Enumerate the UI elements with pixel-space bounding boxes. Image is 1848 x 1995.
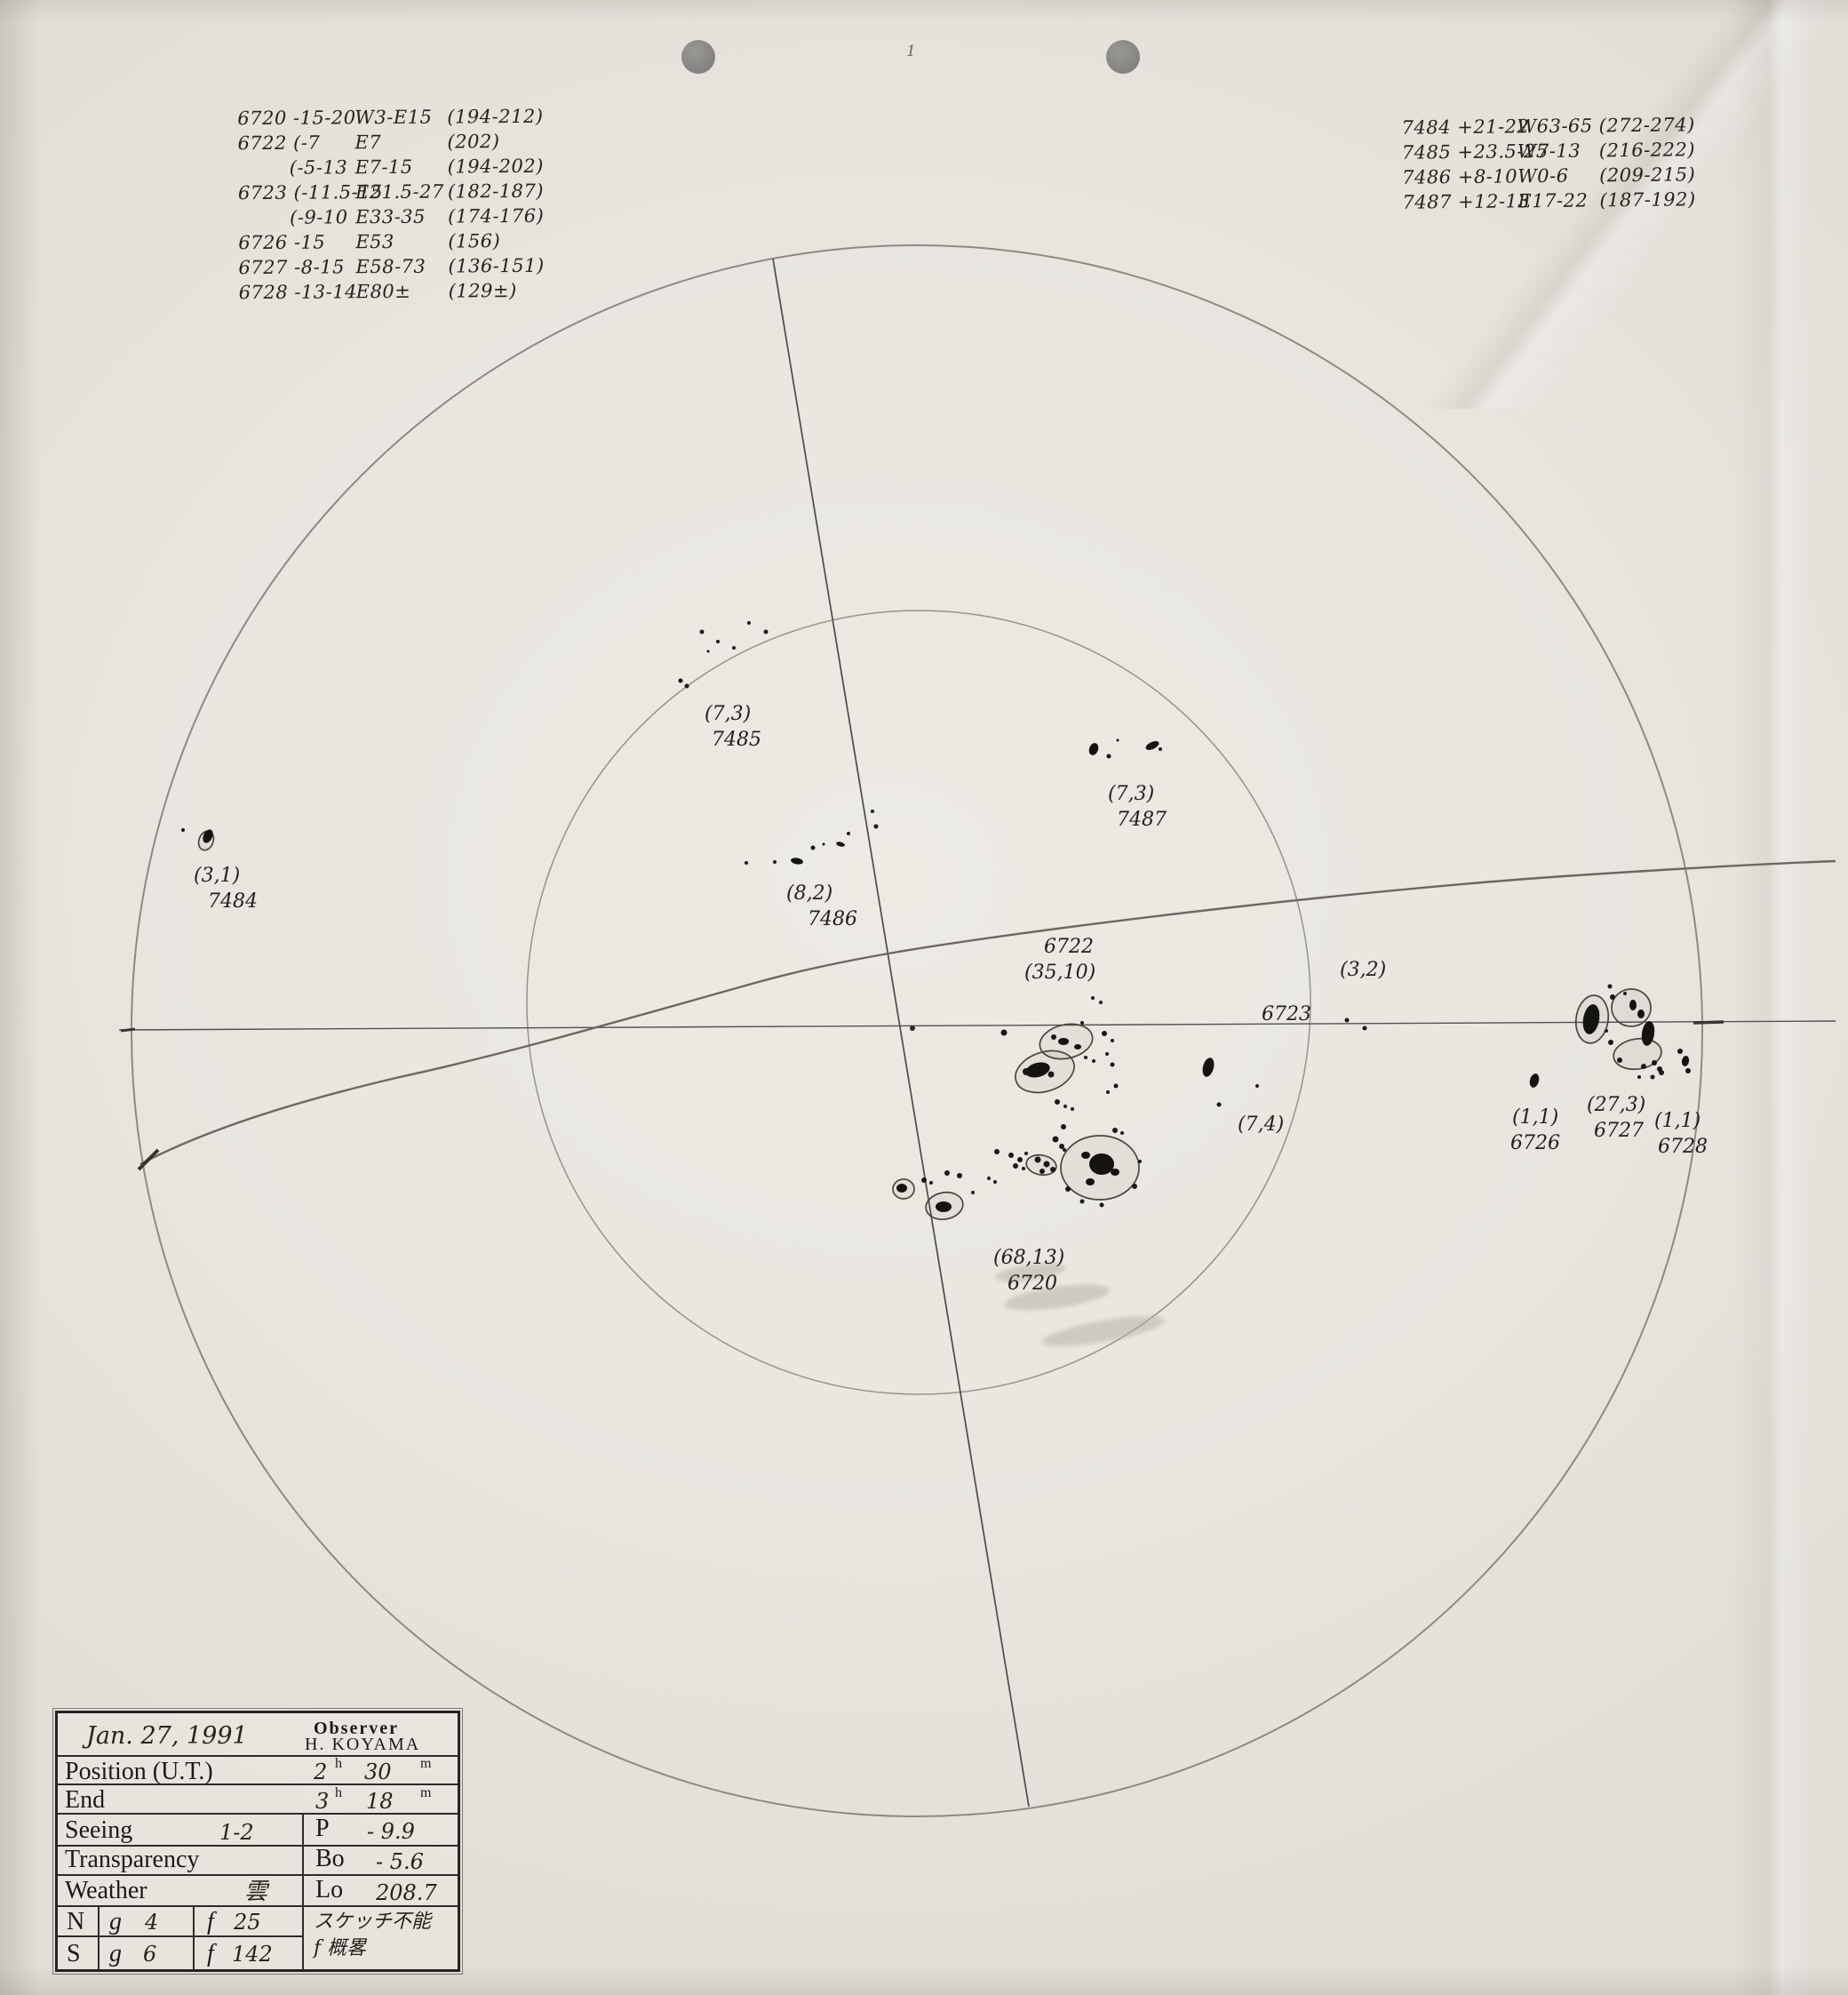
- umbra-spot: [1200, 1057, 1215, 1078]
- sunspot-dot: [1080, 1021, 1084, 1025]
- end-minute: 18: [366, 1789, 394, 1814]
- n-label: N: [67, 1908, 84, 1936]
- umbra-spot: [1637, 1009, 1645, 1018]
- disk-center-mark: [910, 1025, 915, 1031]
- disk-group-number: 6727: [1594, 1120, 1644, 1142]
- s-f-value: 142: [232, 1942, 273, 1967]
- sunspot-dot: [1107, 754, 1111, 759]
- sunspot-dot: [1159, 747, 1162, 751]
- umbra-spot: [1681, 1055, 1690, 1066]
- sketch-note: スケッチ不能 f 概畧: [314, 1909, 456, 1962]
- sunspot-dot: [1099, 1001, 1103, 1004]
- seeing-value: 1-2: [219, 1820, 254, 1845]
- table-row-end: [58, 1784, 458, 1815]
- sunspot-group-7485: [679, 621, 769, 689]
- sunspot-dot: [1217, 1103, 1222, 1107]
- umbra-spot: [1074, 1044, 1081, 1049]
- sunspot-group-6722: [1001, 996, 1119, 1111]
- sunspot-dot: [994, 1149, 1000, 1154]
- disk-group-number: 6726: [1510, 1132, 1560, 1154]
- sunspot-dot: [716, 640, 720, 643]
- sunspot-dot: [921, 1177, 927, 1183]
- position-label: Position (U.T.): [65, 1758, 213, 1786]
- sunspot-dot: [1255, 1084, 1259, 1088]
- sunspot-dot: [1084, 1056, 1087, 1059]
- umbra-spot: [1528, 1073, 1541, 1089]
- table-row-north: [58, 1905, 302, 1937]
- disk-group-label: (8,2): [786, 882, 832, 905]
- sunspot-group-7487: [1087, 739, 1162, 759]
- sunspot-group-6727: [1573, 985, 1664, 1080]
- sunspot-dot: [1111, 1039, 1114, 1042]
- minute-unit: m: [420, 1756, 431, 1772]
- meridian-line: [773, 259, 1029, 1807]
- umbra-spot: [1086, 1178, 1095, 1185]
- disk-group-label: (7,3): [1108, 783, 1154, 805]
- disk-group-number: 7486: [808, 908, 857, 930]
- sunspot-dot: [1105, 1052, 1109, 1056]
- umbra-spot: [1629, 1000, 1637, 1010]
- s-g-label: g: [109, 1940, 122, 1968]
- s-label: S: [67, 1940, 81, 1968]
- sunspot-dot: [1623, 992, 1627, 995]
- sunspot-group-6720: [893, 1124, 1142, 1222]
- left-limb-tick: [121, 1029, 135, 1031]
- disk-group-label: (3,2): [1340, 959, 1386, 981]
- disk-group-number: 7487: [1117, 809, 1167, 831]
- n-f-value: 25: [234, 1910, 261, 1935]
- sunspot-dot: [1059, 1144, 1064, 1149]
- sunspot-dot: [1641, 1064, 1646, 1069]
- lo-label: Lo: [315, 1876, 343, 1904]
- sunspot-dot: [1023, 1068, 1030, 1075]
- sunspot-dot: [1050, 1167, 1055, 1172]
- sunspot-dot: [1117, 739, 1119, 742]
- disk-group-label: 6723: [1262, 1003, 1311, 1025]
- sunspot-dot: [1114, 1084, 1119, 1089]
- p-value: - 9.9: [367, 1819, 415, 1844]
- umbra-spot: [1087, 742, 1100, 757]
- inner-reference-circle: [527, 610, 1310, 1394]
- end-minute-unit: m: [420, 1785, 431, 1801]
- s-g-value: 6: [143, 1942, 156, 1967]
- sunspot-dot: [1610, 994, 1615, 1000]
- sunspot-dot: [1063, 1148, 1066, 1152]
- sunspot-dot: [1132, 1184, 1137, 1189]
- sunspot-dot: [847, 832, 850, 835]
- umbra-spot: [836, 841, 846, 847]
- umbra-spot: [896, 1184, 907, 1193]
- transparency-label: Transparency: [65, 1846, 199, 1874]
- umbra-spot: [1058, 1038, 1069, 1045]
- disk-group-number: 6728: [1658, 1136, 1708, 1158]
- sunspot-dot: [1008, 1153, 1014, 1158]
- observation-table: Jan. 27, 1991 Observer H. KOYAMA Positio…: [55, 1711, 460, 1972]
- sunspot-group-6728: [1677, 1049, 1691, 1073]
- sunspot-dot: [1677, 1049, 1683, 1054]
- sunspot-dot: [1651, 1075, 1655, 1080]
- sunspot-dot: [1051, 1034, 1056, 1040]
- sunspot-dot: [732, 646, 736, 650]
- sunspot-dot: [1024, 1152, 1028, 1155]
- penumbra-outline: [1612, 1035, 1663, 1072]
- sunspot-dot: [1092, 1059, 1095, 1063]
- disk-group-label: (7,4): [1238, 1113, 1284, 1136]
- disk-group-number: 7485: [712, 729, 761, 751]
- disk-group-label: (1,1): [1512, 1106, 1558, 1129]
- sunspot-dot: [1112, 1128, 1118, 1133]
- sunspot-dot: [1013, 1163, 1018, 1169]
- sunspot-dot: [1106, 1090, 1110, 1094]
- bo-label: Bo: [315, 1845, 345, 1873]
- sunspot-dot: [1080, 1200, 1085, 1204]
- umbra-spot: [1111, 1169, 1119, 1176]
- sunspot-group-7486: [745, 810, 879, 866]
- sunspot-dot: [1044, 1161, 1050, 1168]
- disk-group-number: (35,10): [1024, 962, 1095, 984]
- right-limb-tick: [1693, 1022, 1724, 1023]
- end-hour-unit: h: [335, 1785, 342, 1801]
- disk-group-label: (27,3): [1587, 1094, 1645, 1116]
- sunspot-dot: [1071, 1107, 1074, 1111]
- sunspot-dot: [1055, 1099, 1060, 1105]
- sunspot-dot: [1039, 1169, 1045, 1174]
- lo-value: 208.7: [376, 1880, 437, 1905]
- sunspot-dot: [1017, 1157, 1023, 1162]
- sunspot-dot: [944, 1170, 950, 1176]
- sunspot-dot: [1100, 1203, 1104, 1208]
- weather-label: Weather: [65, 1877, 147, 1905]
- sketch-note-line1: スケッチ不能: [314, 1909, 456, 1935]
- position-minute: 30: [364, 1760, 392, 1784]
- date-value: Jan. 27, 1991: [86, 1722, 248, 1750]
- observer-name: H. KOYAMA: [305, 1735, 420, 1755]
- sunspot-dot: [1048, 1072, 1055, 1078]
- sunspot-dot: [181, 828, 185, 832]
- sunspot-dot: [823, 843, 825, 846]
- sunspot-observation-sheet: { "page_marks": { "top_center_mark": "1"…: [0, 0, 1848, 1995]
- sunspot-dot: [1061, 1124, 1066, 1129]
- sunspot-dot: [1053, 1137, 1059, 1143]
- disk-group-label: 6722: [1044, 936, 1094, 958]
- outer-limb-circle: [131, 245, 1702, 1816]
- sunspot-dot: [929, 1181, 933, 1185]
- end-hour: 3: [315, 1789, 329, 1814]
- sunspot-dot: [1111, 1063, 1115, 1067]
- umbra-spot: [1144, 739, 1160, 752]
- sunspot-dot: [745, 861, 748, 865]
- table-divider-gf: [193, 1905, 195, 1969]
- sunspot-dot: [871, 810, 874, 813]
- end-label: End: [65, 1786, 105, 1815]
- sunspot-dot: [1035, 1157, 1041, 1163]
- sunspot-group-6726: [1528, 1073, 1541, 1089]
- n-g-value: 4: [145, 1910, 158, 1935]
- sunspot-dot: [773, 860, 777, 864]
- sunspot-dot: [1138, 1160, 1142, 1163]
- sunspot-dot: [1345, 1018, 1350, 1023]
- table-divider-main: [302, 1813, 304, 1969]
- hour-unit: h: [335, 1756, 342, 1772]
- seeing-label: Seeing: [65, 1816, 132, 1845]
- disk-group-label: (3,1): [194, 865, 240, 887]
- disk-group-label: (1,1): [1654, 1110, 1701, 1132]
- sunspot-dot: [1022, 1167, 1025, 1170]
- sunspot-dot: [993, 1180, 997, 1184]
- sunspot-dot: [874, 825, 879, 829]
- weather-value: 雲: [244, 1879, 267, 1905]
- sunspot-group-6723: [1200, 1018, 1366, 1107]
- sunspot-dot: [1001, 1030, 1008, 1036]
- sunspot-dot: [679, 679, 683, 683]
- sunspot-dot: [1363, 1026, 1367, 1031]
- sunspot-dot: [685, 684, 689, 689]
- disk-group-label: (7,3): [705, 703, 751, 725]
- sunspot-dot: [971, 1191, 975, 1194]
- sunspot-dot: [1608, 1040, 1613, 1045]
- bo-value: - 5.6: [376, 1849, 424, 1874]
- n-f-label: f: [207, 1908, 214, 1936]
- sunspot-dot: [811, 846, 816, 850]
- sunspot-dot: [1685, 1068, 1691, 1073]
- sunspot-dot: [1608, 985, 1613, 989]
- solar-disk-drawing: (7,3)7485(7,3)7487(3,1)7484(8,2)74866722…: [0, 0, 1848, 1995]
- disk-group-number: 6720: [1008, 1273, 1057, 1295]
- pencil-smudge: [1040, 1310, 1167, 1353]
- sunspot-group-7484: [181, 828, 216, 852]
- sunspot-dot: [1120, 1131, 1124, 1135]
- s-f-label: f: [207, 1940, 214, 1968]
- sunspot-dot: [1652, 1060, 1657, 1065]
- sketch-note-line2: f 概畧: [314, 1935, 456, 1962]
- sunspot-dot: [764, 630, 769, 634]
- disk-group-number: 7484: [208, 890, 258, 913]
- sunspot-dot: [1065, 1186, 1071, 1192]
- sunspot-dot: [747, 621, 751, 625]
- umbra-spot: [1089, 1153, 1114, 1175]
- sunspot-dot: [1091, 996, 1095, 1000]
- n-g-label: g: [109, 1908, 122, 1936]
- sunspot-dot: [707, 650, 710, 653]
- sunspot-dot: [1637, 1075, 1641, 1079]
- position-hour: 2: [314, 1760, 327, 1784]
- table-divider-ns: [98, 1905, 100, 1969]
- sunspot-dot: [1657, 1066, 1662, 1072]
- sunspot-dot: [1063, 1105, 1067, 1108]
- sunspot-dot: [700, 630, 705, 634]
- disk-group-label: (68,13): [993, 1247, 1064, 1269]
- umbra-spot: [936, 1201, 952, 1212]
- sunspot-dot: [957, 1173, 962, 1178]
- p-label: P: [315, 1815, 330, 1843]
- sunspot-dot: [987, 1177, 991, 1180]
- sunspot-dot: [1102, 1031, 1107, 1036]
- umbra-spot: [1081, 1152, 1090, 1159]
- umbra-spot: [790, 857, 803, 865]
- sunspot-dot: [1617, 1057, 1622, 1063]
- sunspot-dot: [1605, 1029, 1608, 1033]
